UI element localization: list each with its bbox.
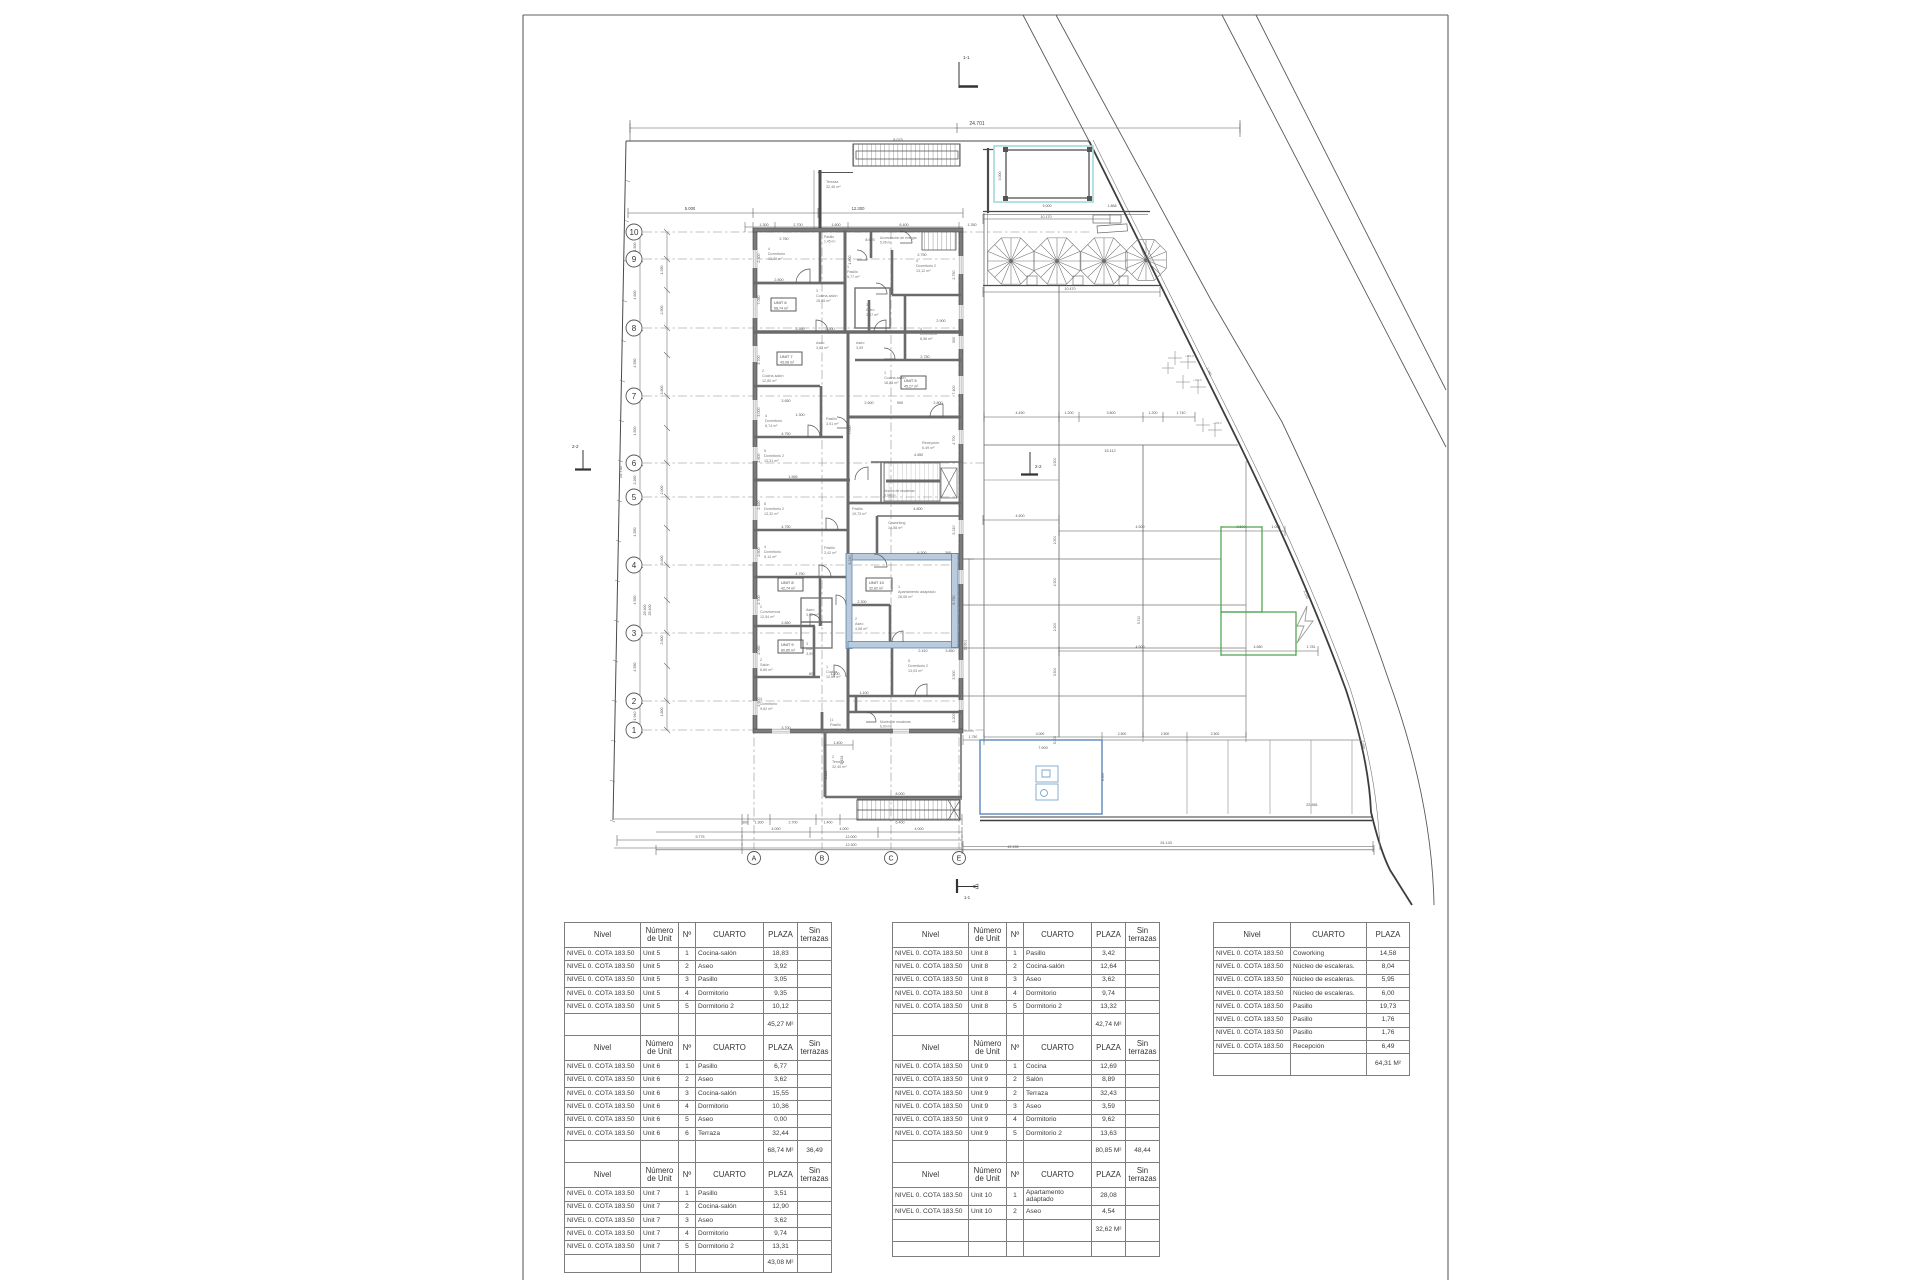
svg-text:UNIT 7: UNIT 7 — [780, 354, 793, 359]
svg-text:2.500: 2.500 — [1211, 732, 1220, 736]
svg-text:1.460: 1.460 — [1205, 367, 1212, 376]
svg-text:2.600: 2.600 — [757, 453, 761, 462]
svg-text:A: A — [752, 856, 757, 863]
svg-text:6.400: 6.400 — [899, 223, 908, 227]
svg-text:1.400: 1.400 — [824, 821, 833, 825]
svg-text:Cocina-salón: Cocina-salón — [884, 376, 906, 380]
svg-text:6,00 m²: 6,00 m² — [880, 725, 892, 729]
svg-text:2.600: 2.600 — [757, 697, 761, 706]
svg-text:13,03 m²: 13,03 m² — [908, 669, 923, 673]
svg-text:Aseo: Aseo — [816, 341, 824, 345]
svg-text:4.750: 4.750 — [781, 432, 790, 436]
svg-text:80,85 m²: 80,85 m² — [781, 649, 796, 653]
svg-text:3.800: 3.800 — [1107, 411, 1116, 415]
svg-text:1.800: 1.800 — [660, 708, 664, 717]
svg-text:2.000: 2.000 — [660, 486, 664, 495]
svg-text:3.600: 3.600 — [660, 556, 664, 565]
svg-text:Dormitorio 2: Dormitorio 2 — [908, 664, 928, 668]
svg-text:19,73 m²: 19,73 m² — [852, 512, 867, 516]
svg-text:7: 7 — [632, 392, 637, 401]
svg-text:3,07 m²: 3,07 m² — [866, 313, 879, 317]
svg-text:1.300: 1.300 — [759, 223, 768, 227]
svg-text:5: 5 — [764, 449, 766, 453]
svg-text:2.800: 2.800 — [774, 278, 783, 282]
svg-text:Pasillo: Pasillo — [847, 270, 858, 274]
svg-text:2.600: 2.600 — [864, 401, 873, 405]
svg-text:Acumulación de energía: Acumulación de energía — [880, 236, 917, 240]
svg-text:1.300: 1.300 — [755, 821, 764, 825]
svg-text:+183,9: +183,9 — [1185, 354, 1194, 358]
svg-text:12.300: 12.300 — [846, 843, 857, 847]
svg-text:2.500: 2.500 — [1161, 732, 1170, 736]
svg-text:5: 5 — [908, 659, 910, 663]
svg-text:1-1: 1-1 — [963, 55, 970, 60]
svg-text:4.750: 4.750 — [795, 572, 804, 576]
svg-text:4.000: 4.000 — [1036, 732, 1045, 736]
svg-text:5.750: 5.750 — [952, 595, 956, 604]
svg-text:29.300: 29.300 — [643, 605, 647, 616]
svg-text:25.741: 25.741 — [618, 465, 623, 478]
svg-text:3.500: 3.500 — [952, 670, 956, 679]
svg-text:Dormitorio: Dormitorio — [920, 332, 937, 336]
svg-text:3.151: 3.151 — [840, 755, 844, 764]
svg-text:8.000: 8.000 — [896, 792, 905, 796]
svg-text:4.750: 4.750 — [781, 525, 790, 529]
svg-text:1.500: 1.500 — [633, 243, 637, 252]
svg-text:3: 3 — [816, 289, 818, 293]
svg-text:2.750: 2.750 — [952, 270, 956, 279]
svg-text:12,80 m²: 12,80 m² — [762, 379, 777, 383]
svg-text:8.675: 8.675 — [865, 238, 874, 242]
svg-text:3.100: 3.100 — [1303, 590, 1310, 599]
svg-text:Núcleo de escaleras: Núcleo de escaleras — [884, 489, 915, 493]
svg-text:12,54 m²: 12,54 m² — [760, 615, 775, 619]
svg-text:3.700: 3.700 — [781, 726, 790, 730]
svg-text:Aseo: Aseo — [806, 608, 814, 612]
svg-text:2.700: 2.700 — [789, 821, 798, 825]
svg-text:(1: (1 — [830, 718, 833, 722]
svg-text:900: 900 — [897, 401, 903, 405]
svg-text:Aseo: Aseo — [855, 622, 863, 626]
svg-text:13,32 m²: 13,32 m² — [764, 512, 779, 516]
svg-text:4.500: 4.500 — [1136, 525, 1145, 529]
svg-text:2: 2 — [760, 658, 762, 662]
svg-text:Salón: Salón — [760, 663, 769, 667]
svg-text:2.500: 2.500 — [1053, 536, 1057, 545]
svg-text:1.200: 1.200 — [1149, 411, 1158, 415]
svg-text:2.700: 2.700 — [793, 223, 802, 227]
svg-text:6: 6 — [632, 459, 637, 468]
svg-text:4.490: 4.490 — [1016, 411, 1025, 415]
svg-text:5,14 m²: 5,14 m² — [764, 555, 777, 559]
svg-text:UNIT 9: UNIT 9 — [781, 642, 794, 647]
svg-text:2.700: 2.700 — [952, 435, 956, 444]
svg-text:68,74 m²: 68,74 m² — [774, 307, 789, 311]
svg-text:5,06 m²: 5,06 m² — [880, 241, 892, 245]
svg-text:1.300: 1.300 — [795, 413, 804, 417]
svg-text:Pasillo: Pasillo — [826, 417, 837, 421]
svg-text:3.500: 3.500 — [1053, 668, 1057, 677]
svg-text:4.580: 4.580 — [1254, 645, 1263, 649]
svg-text:1.200: 1.200 — [1065, 411, 1074, 415]
svg-text:2-2: 2-2 — [1035, 464, 1042, 469]
svg-text:10: 10 — [630, 228, 639, 237]
svg-text:2.900: 2.900 — [936, 319, 945, 323]
svg-text:9,62 m²: 9,62 m² — [760, 707, 773, 711]
svg-text:5.000: 5.000 — [685, 206, 696, 211]
svg-text:2: 2 — [832, 755, 834, 759]
svg-text:5,75 m²: 5,75 m² — [830, 728, 843, 732]
svg-text:2.500: 2.500 — [1053, 623, 1057, 632]
svg-text:2.060: 2.060 — [757, 645, 761, 654]
svg-text:10.170: 10.170 — [1041, 215, 1052, 219]
svg-text:24.143: 24.143 — [1160, 841, 1172, 845]
svg-text:18,83 m²: 18,83 m² — [884, 381, 899, 385]
svg-text:Núcleo de escaleras: Núcleo de escaleras — [880, 720, 911, 724]
svg-text:800: 800 — [809, 672, 815, 676]
svg-text:8,74 m²: 8,74 m² — [765, 424, 778, 428]
svg-text:42.155: 42.155 — [1008, 845, 1019, 849]
svg-text:2: 2 — [855, 617, 857, 621]
svg-text:2.300: 2.300 — [857, 600, 866, 604]
svg-text:2.260: 2.260 — [633, 476, 637, 485]
svg-text:4: 4 — [768, 247, 770, 251]
svg-text:Dormitorio: Dormitorio — [765, 419, 782, 423]
svg-text:6.300: 6.300 — [917, 551, 926, 555]
svg-text:UNIT 5: UNIT 5 — [904, 378, 917, 383]
svg-text:4.550: 4.550 — [633, 596, 637, 605]
svg-text:3,02 m²: 3,02 m² — [806, 613, 819, 617]
svg-text:2.500: 2.500 — [1053, 578, 1057, 587]
svg-text:7.900: 7.900 — [1038, 746, 1048, 750]
svg-text:2.760: 2.760 — [779, 237, 788, 241]
svg-text:300: 300 — [952, 337, 956, 343]
svg-text:2.600: 2.600 — [757, 547, 761, 556]
svg-text:4.800: 4.800 — [913, 507, 922, 511]
svg-text:2-2: 2-2 — [572, 444, 579, 449]
svg-text:1.600: 1.600 — [831, 223, 840, 227]
svg-text:6,49 m²: 6,49 m² — [922, 446, 935, 450]
svg-text:2.800: 2.800 — [660, 636, 664, 645]
svg-text:43,08 m²: 43,08 m² — [780, 361, 795, 365]
svg-text:1.565: 1.565 — [788, 475, 797, 479]
svg-text:1: 1 — [632, 726, 637, 735]
svg-text:3,51 m²: 3,51 m² — [826, 422, 839, 426]
svg-text:2.850: 2.850 — [781, 621, 790, 625]
svg-text:1,45 m²: 1,45 m² — [824, 240, 836, 244]
svg-text:Pasillo: Pasillo — [852, 507, 863, 511]
svg-text:Aseo: Aseo — [866, 308, 874, 312]
svg-text:3.850: 3.850 — [945, 649, 954, 653]
svg-text:1.781: 1.781 — [1307, 645, 1316, 649]
svg-text:25.400: 25.400 — [648, 605, 652, 616]
svg-text:Aseo: Aseo — [806, 647, 814, 651]
svg-text:4.600: 4.600 — [633, 291, 637, 300]
svg-text:4.550: 4.550 — [633, 663, 637, 672]
svg-text:4: 4 — [632, 561, 637, 570]
svg-text:2.750: 2.750 — [920, 355, 929, 359]
svg-text:1-1: 1-1 — [964, 895, 971, 900]
svg-text:4,58 m²: 4,58 m² — [855, 627, 868, 631]
svg-text:7.000: 7.000 — [848, 425, 852, 434]
svg-text:3.000: 3.000 — [1360, 740, 1366, 749]
svg-text:4.000: 4.000 — [840, 827, 849, 831]
svg-text:4.500: 4.500 — [1016, 514, 1025, 518]
svg-text:+183,2: +183,2 — [1213, 421, 1222, 425]
svg-text:4.450: 4.450 — [914, 453, 923, 457]
svg-text:13,36 m²: 13,36 m² — [768, 257, 783, 261]
svg-text:8.075: 8.075 — [893, 138, 903, 142]
svg-text:1: 1 — [898, 585, 900, 589]
svg-text:12.300: 12.300 — [852, 206, 865, 211]
svg-text:5: 5 — [632, 493, 637, 502]
svg-text:1.750: 1.750 — [969, 735, 978, 739]
svg-text:3,59: 3,59 — [806, 652, 813, 656]
svg-text:15.112: 15.112 — [1104, 449, 1115, 453]
svg-text:15,55 m²: 15,55 m² — [816, 299, 831, 303]
svg-text:2.700: 2.700 — [757, 595, 761, 604]
svg-text:24.701: 24.701 — [969, 121, 985, 127]
svg-text:3: 3 — [632, 629, 637, 638]
svg-text:300: 300 — [945, 551, 951, 555]
svg-text:3,62 m²: 3,62 m² — [816, 346, 829, 350]
svg-text:4: 4 — [920, 327, 922, 331]
svg-text:3.650: 3.650 — [781, 399, 790, 403]
svg-text:Cocina-salón: Cocina-salón — [762, 374, 784, 378]
svg-text:1.940: 1.940 — [633, 712, 637, 721]
svg-text:3.500: 3.500 — [1053, 458, 1057, 467]
svg-text:1: 1 — [826, 665, 828, 669]
svg-text:10.470: 10.470 — [1065, 287, 1076, 291]
svg-text:2: 2 — [762, 369, 764, 373]
svg-text:2.550: 2.550 — [795, 327, 804, 331]
svg-text:Coworking: Coworking — [888, 521, 905, 525]
svg-text:32,46 m²: 32,46 m² — [826, 185, 841, 189]
svg-text:Pasillo: Pasillo — [824, 546, 835, 550]
svg-text:14,58 m²: 14,58 m² — [888, 526, 903, 530]
svg-text:8,89 m²: 8,89 m² — [760, 668, 773, 672]
svg-text:UNIT 10: UNIT 10 — [869, 580, 885, 585]
svg-text:Dormitorio 2: Dormitorio 2 — [764, 507, 784, 511]
svg-text:3.210: 3.210 — [952, 525, 956, 534]
svg-text:2.800: 2.800 — [933, 401, 942, 405]
svg-text:3.700: 3.700 — [757, 355, 761, 364]
svg-text:E: E — [957, 856, 962, 863]
svg-text:4.000: 4.000 — [915, 827, 924, 831]
svg-text:2.410: 2.410 — [918, 649, 927, 653]
svg-text:9: 9 — [632, 255, 637, 264]
svg-text:42,74 m²: 42,74 m² — [781, 587, 796, 591]
svg-text:Dormitorio: Dormitorio — [764, 550, 781, 554]
svg-text:2.200: 2.200 — [952, 713, 956, 722]
svg-text:1.350: 1.350 — [967, 223, 976, 227]
svg-text:7.050: 7.050 — [757, 295, 761, 304]
svg-text:8,04 m²: 8,04 m² — [884, 494, 896, 498]
svg-text:6.400: 6.400 — [896, 821, 905, 825]
svg-text:13,31 m²: 13,31 m² — [764, 459, 779, 463]
svg-text:3,42 m²: 3,42 m² — [824, 551, 837, 555]
svg-text:1.100: 1.100 — [859, 691, 868, 695]
svg-text:3.800: 3.800 — [660, 386, 664, 395]
svg-text:7.400: 7.400 — [952, 385, 956, 394]
svg-text:B: B — [820, 856, 825, 863]
svg-text:13,12 m²: 13,12 m² — [916, 269, 931, 273]
svg-text:28,08 m²: 28,08 m² — [898, 595, 913, 599]
svg-text:2: 2 — [632, 697, 637, 706]
svg-text:Pasillo: Pasillo — [824, 235, 834, 239]
svg-text:4.500: 4.500 — [633, 427, 637, 436]
svg-text:Recepción: Recepción — [922, 441, 939, 445]
svg-text:4.550: 4.550 — [633, 359, 637, 368]
svg-text:4.000: 4.000 — [772, 827, 781, 831]
svg-text:1.800: 1.800 — [848, 255, 852, 264]
svg-text:Apartamento adaptado: Apartamento adaptado — [898, 590, 936, 594]
svg-text:Aseo: Aseo — [856, 341, 864, 345]
svg-text:3.151: 3.151 — [824, 771, 828, 780]
svg-text:1.100: 1.100 — [830, 672, 839, 676]
svg-text:4.500: 4.500 — [1101, 773, 1105, 782]
svg-text:1.350: 1.350 — [660, 266, 664, 275]
svg-text:3: 3 — [806, 642, 808, 646]
svg-text:UNIT 6: UNIT 6 — [774, 300, 787, 305]
svg-text:45,27 m²: 45,27 m² — [904, 385, 919, 389]
svg-text:+183,6: +183,6 — [1193, 378, 1202, 382]
svg-text:1.868: 1.868 — [1108, 204, 1117, 208]
svg-text:3.000: 3.000 — [757, 407, 761, 416]
svg-text:8,56 m²: 8,56 m² — [920, 337, 933, 341]
svg-text:12.000: 12.000 — [846, 835, 857, 839]
svg-text:4.550: 4.550 — [633, 528, 637, 537]
svg-text:5,77 m²: 5,77 m² — [847, 275, 860, 279]
svg-text:UNIT 8: UNIT 8 — [781, 580, 794, 585]
svg-text:Convivencia: Convivencia — [760, 610, 781, 614]
svg-text:3.210: 3.210 — [848, 555, 852, 564]
svg-text:Terraza: Terraza — [826, 180, 839, 184]
svg-text:5.710: 5.710 — [1137, 616, 1141, 625]
svg-text:1.400: 1.400 — [834, 741, 843, 745]
svg-text:8: 8 — [764, 502, 766, 506]
svg-text:Pasillo: Pasillo — [830, 723, 841, 727]
svg-text:300: 300 — [742, 821, 748, 825]
svg-text:2.500: 2.500 — [1118, 732, 1127, 736]
svg-text:22.601: 22.601 — [964, 640, 968, 650]
svg-text:4: 4 — [765, 414, 767, 418]
svg-text:5.000: 5.000 — [1043, 204, 1052, 208]
svg-text:2.420: 2.420 — [757, 500, 761, 509]
svg-text:Cocina-salón: Cocina-salón — [816, 294, 838, 298]
svg-text:Dormitorio 2: Dormitorio 2 — [916, 264, 936, 268]
svg-text:4.500: 4.500 — [1136, 645, 1145, 649]
svg-text:32,62 m²: 32,62 m² — [869, 587, 884, 591]
svg-text:8: 8 — [632, 324, 637, 333]
svg-text:Dormitorio: Dormitorio — [768, 252, 785, 256]
svg-text:3: 3 — [866, 303, 868, 307]
svg-text:1.054: 1.054 — [1272, 525, 1281, 529]
svg-text:2.750: 2.750 — [917, 253, 926, 257]
svg-text:22.881: 22.881 — [1306, 803, 1318, 807]
svg-text:5.775: 5.775 — [696, 835, 705, 839]
svg-text:3,09: 3,09 — [856, 346, 863, 350]
svg-text:1: 1 — [884, 371, 886, 375]
svg-text:Dormitorio: Dormitorio — [760, 702, 777, 706]
svg-text:5: 5 — [916, 259, 918, 263]
svg-text:2.500: 2.500 — [660, 306, 664, 315]
svg-text:1.740: 1.740 — [1177, 411, 1186, 415]
svg-text:2.500: 2.500 — [825, 327, 834, 331]
svg-text:2.800: 2.800 — [757, 253, 761, 262]
svg-text:3.000: 3.000 — [998, 172, 1002, 181]
svg-text:Dormitorio 2: Dormitorio 2 — [764, 454, 784, 458]
svg-text:4: 4 — [764, 545, 766, 549]
svg-text:C: C — [888, 856, 893, 863]
